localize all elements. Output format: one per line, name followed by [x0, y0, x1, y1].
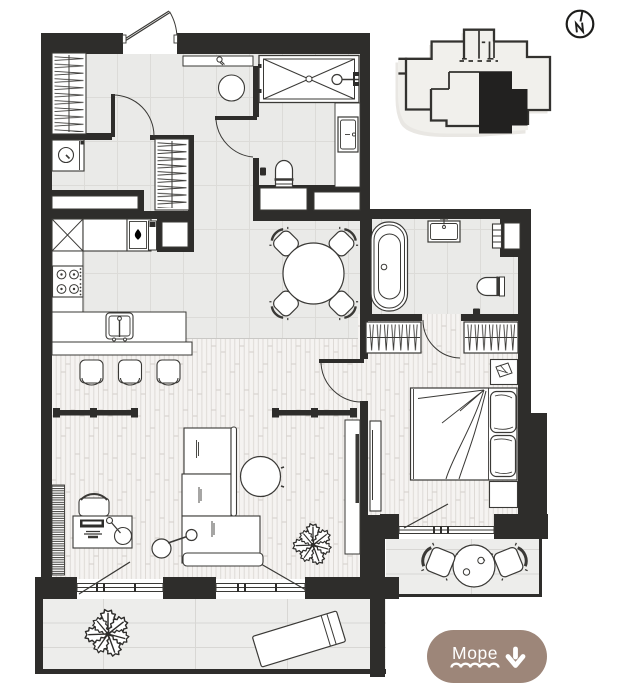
- svg-text:Море: Море: [452, 643, 498, 663]
